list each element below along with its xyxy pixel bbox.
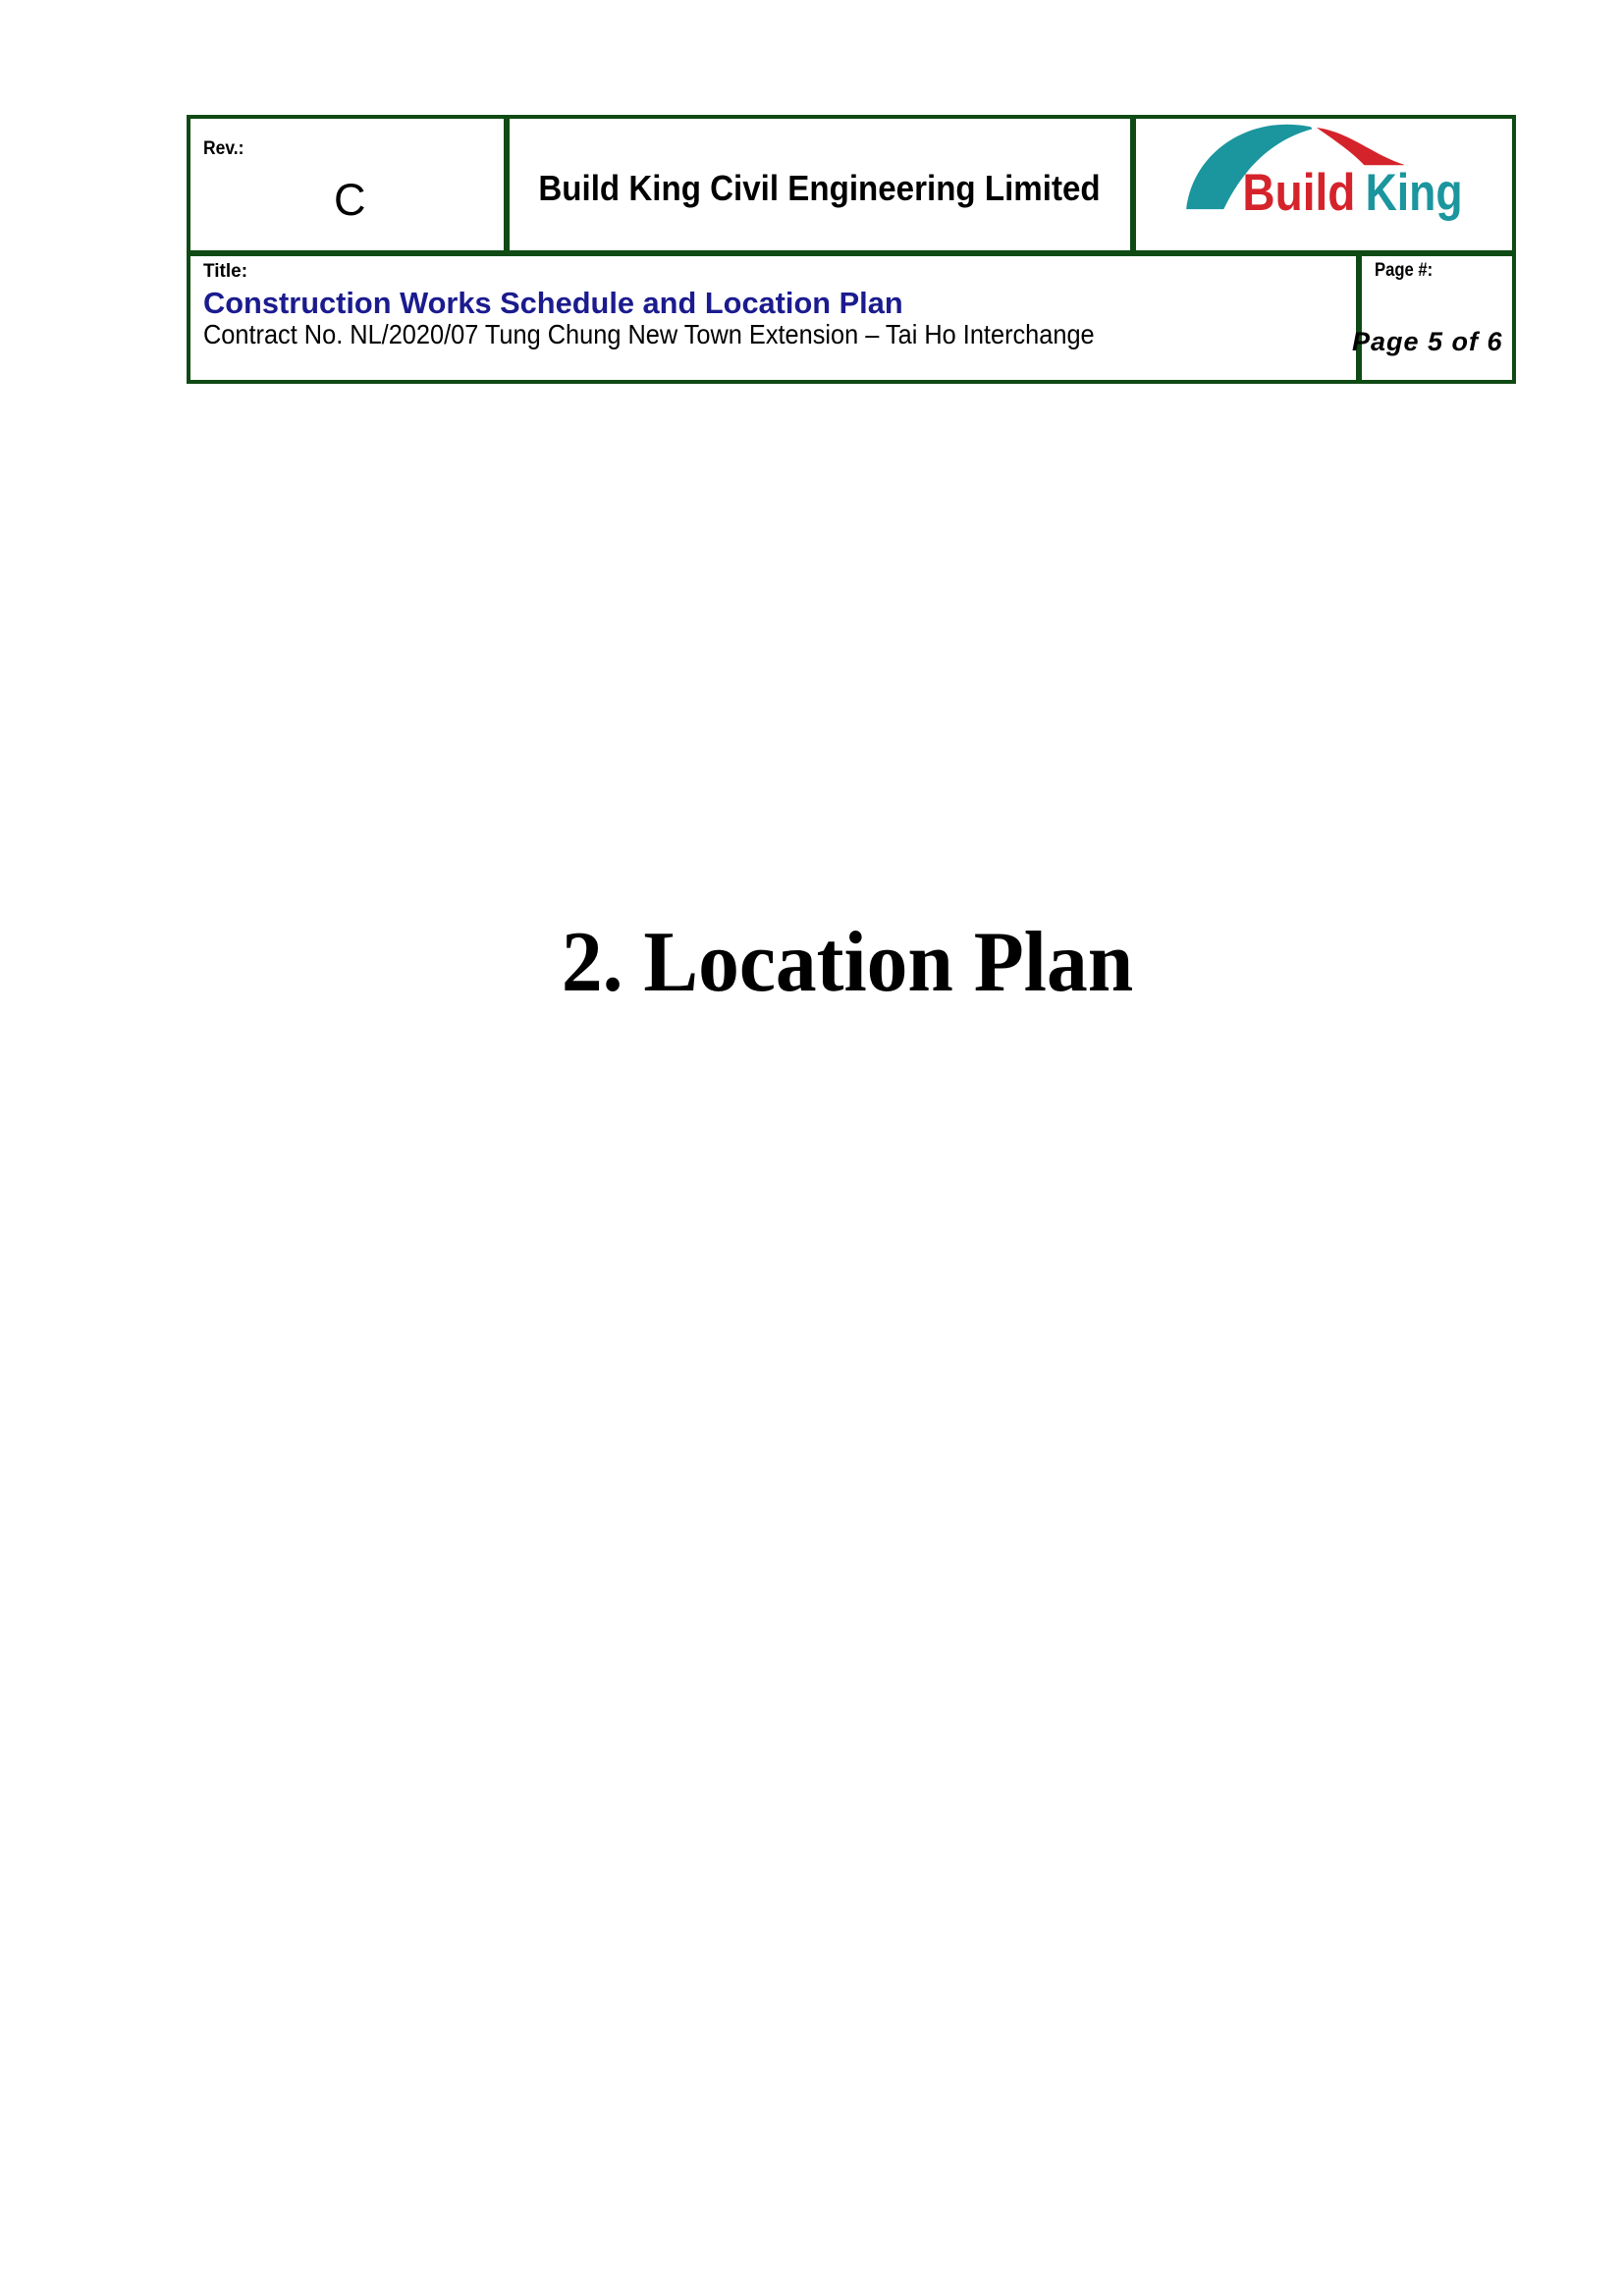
svg-text:King: King bbox=[1366, 164, 1463, 222]
svg-text:Build: Build bbox=[1242, 164, 1355, 222]
